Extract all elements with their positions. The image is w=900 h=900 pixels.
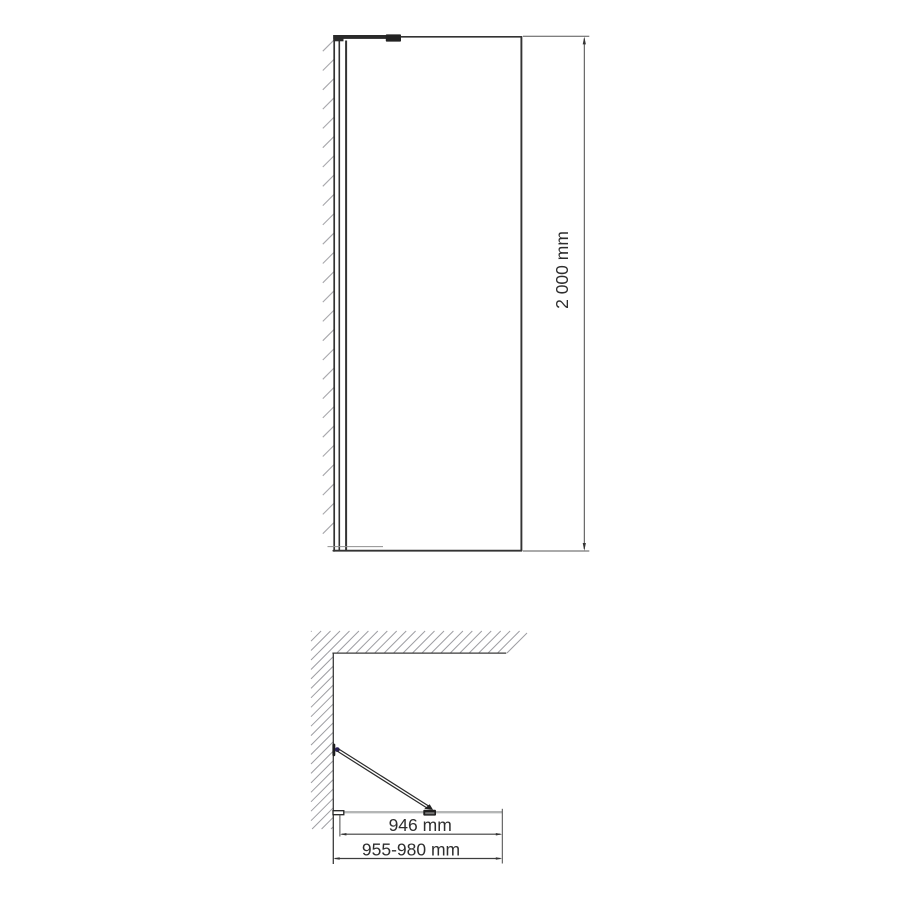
svg-text:946 mm: 946 mm (389, 815, 452, 835)
svg-text:955-980 mm: 955-980 mm (362, 839, 460, 859)
svg-text:2 000 mm: 2 000 mm (552, 231, 572, 309)
